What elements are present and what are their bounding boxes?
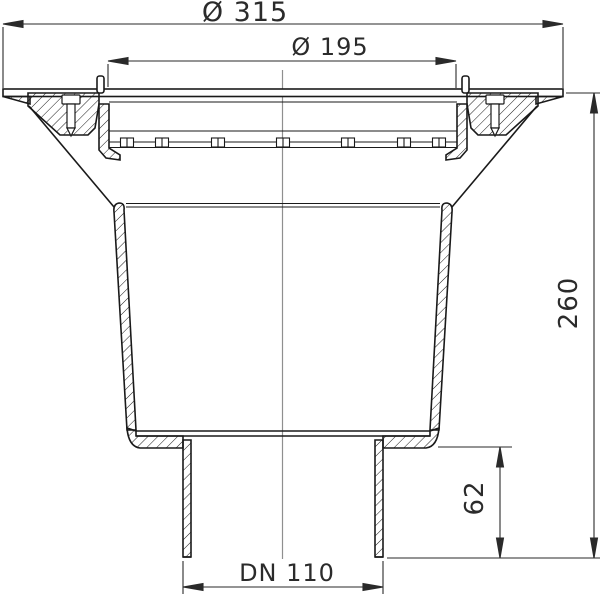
- flange-lip-left: [3, 97, 30, 105]
- drawing-canvas: Ø 315 Ø 195 260 62 DN 110: [0, 0, 600, 594]
- neck-wall-left: [99, 104, 120, 160]
- bucket-wall-left: [114, 203, 136, 430]
- dim-label-outer-diameter: Ø 315: [202, 0, 288, 28]
- fixing-pin-right: [462, 76, 469, 93]
- dim-label-outlet-stub-height: 62: [460, 480, 490, 515]
- flange-lip-right: [536, 97, 563, 105]
- grate-rail: [109, 138, 457, 148]
- dim-label-inner-diameter: Ø 195: [291, 33, 368, 61]
- neck-wall-right: [446, 104, 467, 160]
- bucket-wall-right: [430, 203, 452, 430]
- fixing-pin-left: [97, 76, 104, 93]
- dim-label-outlet-nominal: DN 110: [239, 559, 335, 587]
- dim-label-total-height: 260: [554, 277, 584, 330]
- outlet-pipe-wall-left: [183, 440, 191, 557]
- outlet-pipe-wall-right: [375, 440, 383, 557]
- drain-section-drawing: Ø 315 Ø 195 260 62 DN 110: [0, 0, 600, 594]
